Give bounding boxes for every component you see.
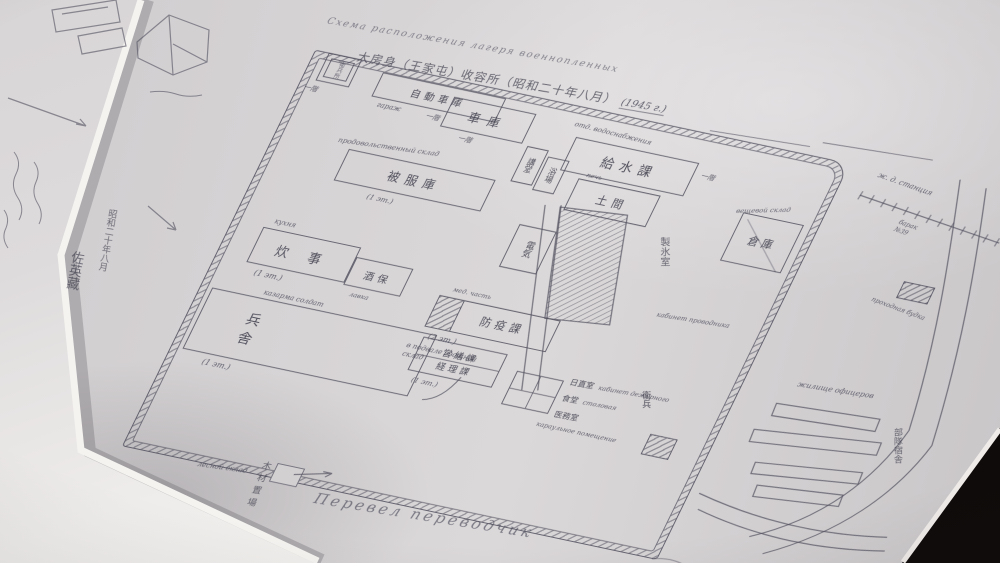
railway-line [852,195,1000,243]
translator-flourish [651,556,712,563]
water-dept-label: 給水課 [597,152,661,181]
lecture-hall-label: 講堂 [521,157,539,174]
canteen-label: 酒保 [361,267,395,287]
car-shed-label: 車庫 [465,108,512,132]
storehouse-label: 倉庫 [745,232,780,253]
guard-house-jp: 衛兵 [639,391,652,437]
epidemic-label: 防疫課 [457,309,528,337]
kitchen-label: 炊事 [262,238,345,271]
officers-bar-2 [748,417,882,467]
electric-label: 電気 [517,240,538,259]
officers-jp: 部隊宿舎 [891,428,904,498]
medical-jp: 医務室 [552,410,580,423]
photo-of-camp-plan: 昭和二十年八月 佐英藏 Схема расположения лагеря во… [0,0,1000,563]
doma-label: 土間 [593,192,632,213]
officers-bar-3 [750,451,864,495]
guard-post-label: 衛兵所 [330,61,347,80]
guard-post-inner: 衛兵所 [323,58,356,82]
bottom-road-2 [693,509,886,560]
bath-label: 浴場 [542,167,560,184]
timber-arrow [294,466,332,482]
officers-bar-4 [752,478,844,514]
officers-bar-1 [771,398,881,437]
clothing-store-label: 被服庫 [384,167,445,194]
duty-cluster-hline [510,388,555,398]
storehouse-ru: вещевой склад [735,206,791,215]
